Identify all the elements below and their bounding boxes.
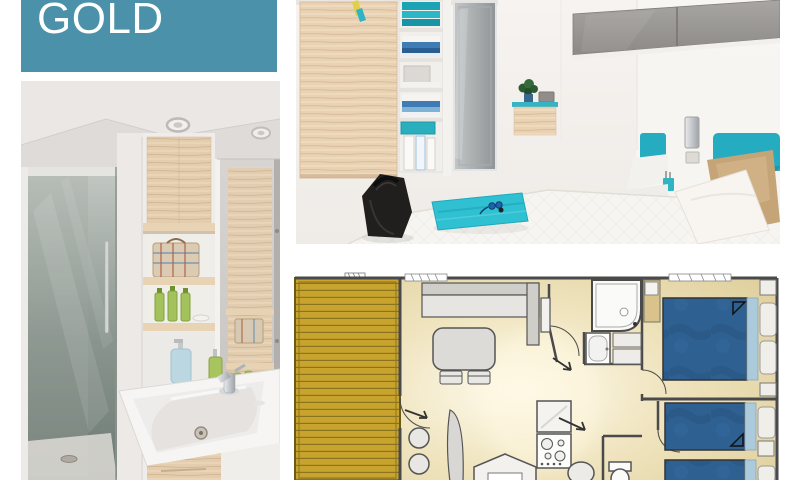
pillow bbox=[758, 407, 775, 438]
towel-shelves bbox=[399, 2, 443, 122]
shower-handle-icon bbox=[105, 241, 109, 333]
pillow bbox=[760, 303, 776, 336]
bedroom-photo bbox=[296, 0, 780, 244]
teal-box-icon bbox=[401, 122, 435, 134]
chair bbox=[440, 371, 462, 384]
master-bed bbox=[663, 298, 747, 380]
twin-bedroom bbox=[665, 403, 775, 480]
gold-banner: GOLD bbox=[21, 0, 277, 72]
kitchen-stove bbox=[537, 434, 571, 468]
light-switch-icon bbox=[686, 152, 699, 163]
round-table bbox=[568, 462, 594, 480]
washbasin-plan bbox=[586, 333, 641, 364]
stool bbox=[409, 454, 429, 474]
pillow bbox=[760, 341, 776, 374]
wc-toilet bbox=[609, 462, 631, 480]
bathroom-photo bbox=[21, 81, 280, 480]
binders-icon bbox=[404, 136, 435, 170]
deck-terrace bbox=[295, 273, 400, 480]
wardrobe bbox=[296, 0, 498, 178]
wall-light-icon bbox=[685, 117, 699, 148]
plaid-basket-icon bbox=[153, 239, 199, 277]
twin-bed-2 bbox=[665, 460, 745, 480]
mirror-sliding-door bbox=[454, 2, 496, 170]
shower bbox=[592, 280, 641, 331]
wardrobe-sliding-door bbox=[300, 2, 397, 178]
page: GOLD bbox=[0, 0, 796, 480]
radio-icon bbox=[539, 92, 554, 102]
banner-label: GOLD bbox=[37, 0, 277, 41]
shower-drain-icon bbox=[61, 456, 77, 463]
floor-plan bbox=[291, 270, 779, 480]
chair bbox=[468, 371, 490, 384]
plant-pot-icon bbox=[524, 94, 533, 103]
stool bbox=[409, 428, 429, 448]
shower-cabin bbox=[21, 167, 117, 480]
pillow bbox=[758, 466, 775, 480]
